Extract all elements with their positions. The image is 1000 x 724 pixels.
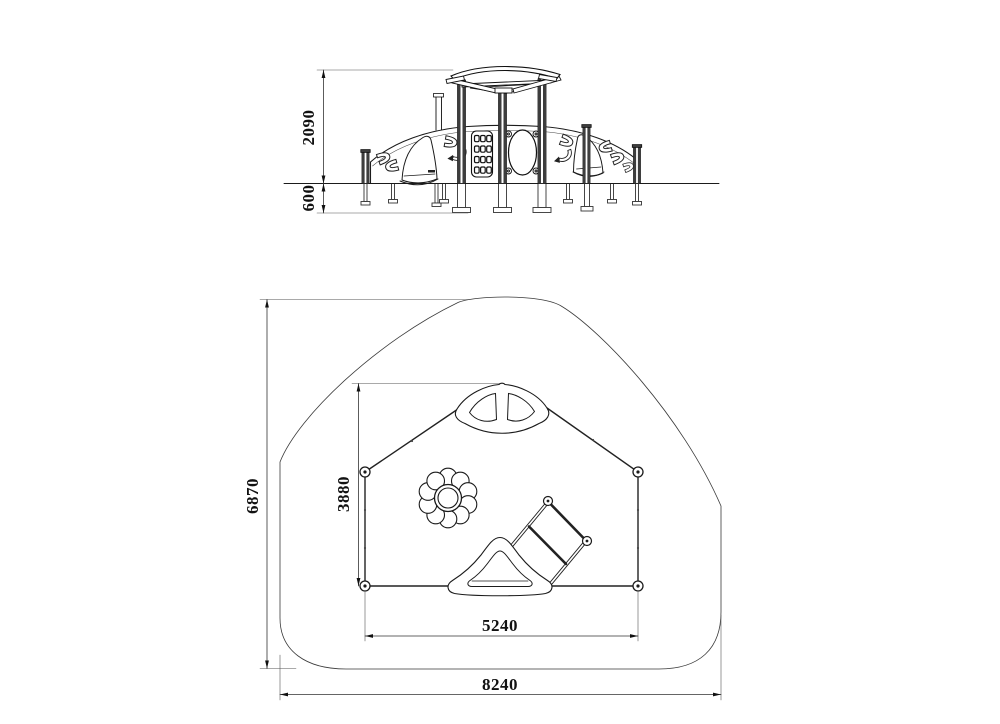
- arrowhead: [357, 384, 361, 392]
- footing-plate: [440, 200, 449, 204]
- post-stripe: [366, 152, 368, 184]
- post-stripe: [504, 93, 507, 184]
- clip: [364, 547, 366, 549]
- post-stripe: [583, 127, 585, 184]
- tower-footing-plate: [453, 208, 471, 213]
- corner-post-dot: [363, 584, 366, 587]
- post-cap: [361, 150, 370, 153]
- clip: [592, 439, 594, 441]
- corner-post-dot: [363, 470, 366, 473]
- footing-plate: [361, 202, 370, 206]
- arrowhead: [265, 661, 269, 669]
- footing-post: [435, 184, 438, 204]
- post-stripe: [634, 147, 636, 184]
- clip: [364, 509, 366, 511]
- bolt: [508, 170, 510, 172]
- footing-post: [636, 184, 639, 202]
- footing-post: [585, 184, 590, 207]
- footing-post: [443, 184, 446, 200]
- grid-hole: [487, 167, 492, 173]
- dim-label-height: 2090: [299, 110, 318, 146]
- footing-post: [364, 184, 367, 202]
- grid-hole: [481, 136, 486, 142]
- footing-post: [392, 184, 395, 200]
- tower-footing-plate: [533, 208, 551, 213]
- post-stripe: [499, 93, 502, 184]
- tower-footing-post: [499, 184, 507, 208]
- dim-label-zone-width: 8240: [482, 675, 518, 694]
- arrowhead: [713, 693, 721, 697]
- footing-plate: [581, 207, 593, 212]
- ladder-post-dot: [547, 500, 550, 503]
- grid-hole: [481, 167, 486, 173]
- dim-5240: 5240: [365, 592, 638, 641]
- footing-plate: [389, 200, 398, 204]
- arrowhead: [265, 300, 269, 308]
- grid-hole: [487, 157, 492, 163]
- grid-hole: [475, 136, 480, 142]
- post-stripe: [587, 127, 589, 184]
- post-cap: [632, 145, 641, 148]
- post-stripe: [543, 79, 546, 184]
- clip: [411, 440, 413, 442]
- arrowhead: [322, 70, 326, 78]
- clip: [637, 509, 639, 511]
- grid-hole: [481, 157, 486, 163]
- elevation-view: 2090 600: [284, 67, 719, 214]
- arrowhead: [322, 176, 326, 184]
- ladder-rung: [529, 527, 566, 565]
- technical-drawing: 2090 600 6870 8240: [0, 0, 1000, 724]
- underground-posts: [361, 184, 642, 213]
- triangle-panel-plan: [448, 538, 552, 596]
- post-stripe: [463, 80, 466, 184]
- left-outer-post: [361, 150, 370, 184]
- arrowhead: [365, 634, 373, 638]
- footing-post: [567, 184, 570, 200]
- grid-hole: [475, 167, 480, 173]
- grid-hole: [481, 146, 486, 152]
- grid-stub-post: [434, 94, 444, 131]
- footing-plate: [633, 202, 642, 206]
- post-stripe: [638, 147, 640, 184]
- ladder-rung: [551, 505, 583, 538]
- ladder-rail: [508, 501, 547, 548]
- clip: [637, 547, 639, 549]
- footing-plate: [608, 200, 617, 204]
- dim-label-inner-width: 5240: [482, 616, 518, 635]
- ladder-rail: [548, 542, 587, 589]
- footing-post: [611, 184, 614, 200]
- post-stripe: [458, 80, 461, 184]
- stub-cap: [434, 94, 444, 98]
- plan-view: 6870 8240 3880: [243, 297, 721, 700]
- corner-post-dot: [636, 584, 639, 587]
- fan-outline: [455, 383, 548, 433]
- tower-footing-post: [538, 184, 546, 208]
- grid-hole: [487, 146, 492, 152]
- footing-plate: [432, 203, 441, 207]
- flower-element: [419, 468, 477, 528]
- fin-step-mark: [428, 170, 435, 173]
- arrowhead: [322, 184, 326, 192]
- footing-plate: [564, 200, 573, 204]
- ladder-post-dot: [586, 540, 589, 543]
- bolt: [508, 133, 510, 135]
- bolt: [535, 170, 537, 172]
- canopy-cap-center: [495, 88, 512, 93]
- grid-hole: [475, 157, 480, 163]
- oval-window: [509, 130, 537, 175]
- tower-footing-post: [458, 184, 466, 208]
- tower-footing-plate: [494, 208, 512, 213]
- right-mid-post: [582, 125, 591, 184]
- grid-hole: [475, 146, 480, 152]
- post-stripe: [538, 79, 541, 184]
- post-stripe: [362, 152, 364, 184]
- dim-label-inner-depth: 3880: [334, 476, 353, 512]
- right-outer-post: [632, 145, 641, 184]
- arrowhead: [280, 693, 288, 697]
- climb-grid-panel: [472, 131, 493, 177]
- flower-hub-inner: [438, 488, 458, 508]
- fan-panel-plan: [455, 383, 548, 433]
- arrowhead: [322, 205, 326, 213]
- drawing-sheet: 2090 600 6870 8240: [0, 0, 1000, 724]
- corner-post-dot: [636, 470, 639, 473]
- oval-window-panel: [506, 130, 540, 175]
- bolt: [535, 133, 537, 135]
- arrowhead: [630, 634, 638, 638]
- post-cap: [582, 125, 591, 128]
- dim-label-zone-length: 6870: [243, 478, 262, 514]
- grid-hole: [487, 136, 492, 142]
- dim-label-depth: 600: [299, 185, 318, 212]
